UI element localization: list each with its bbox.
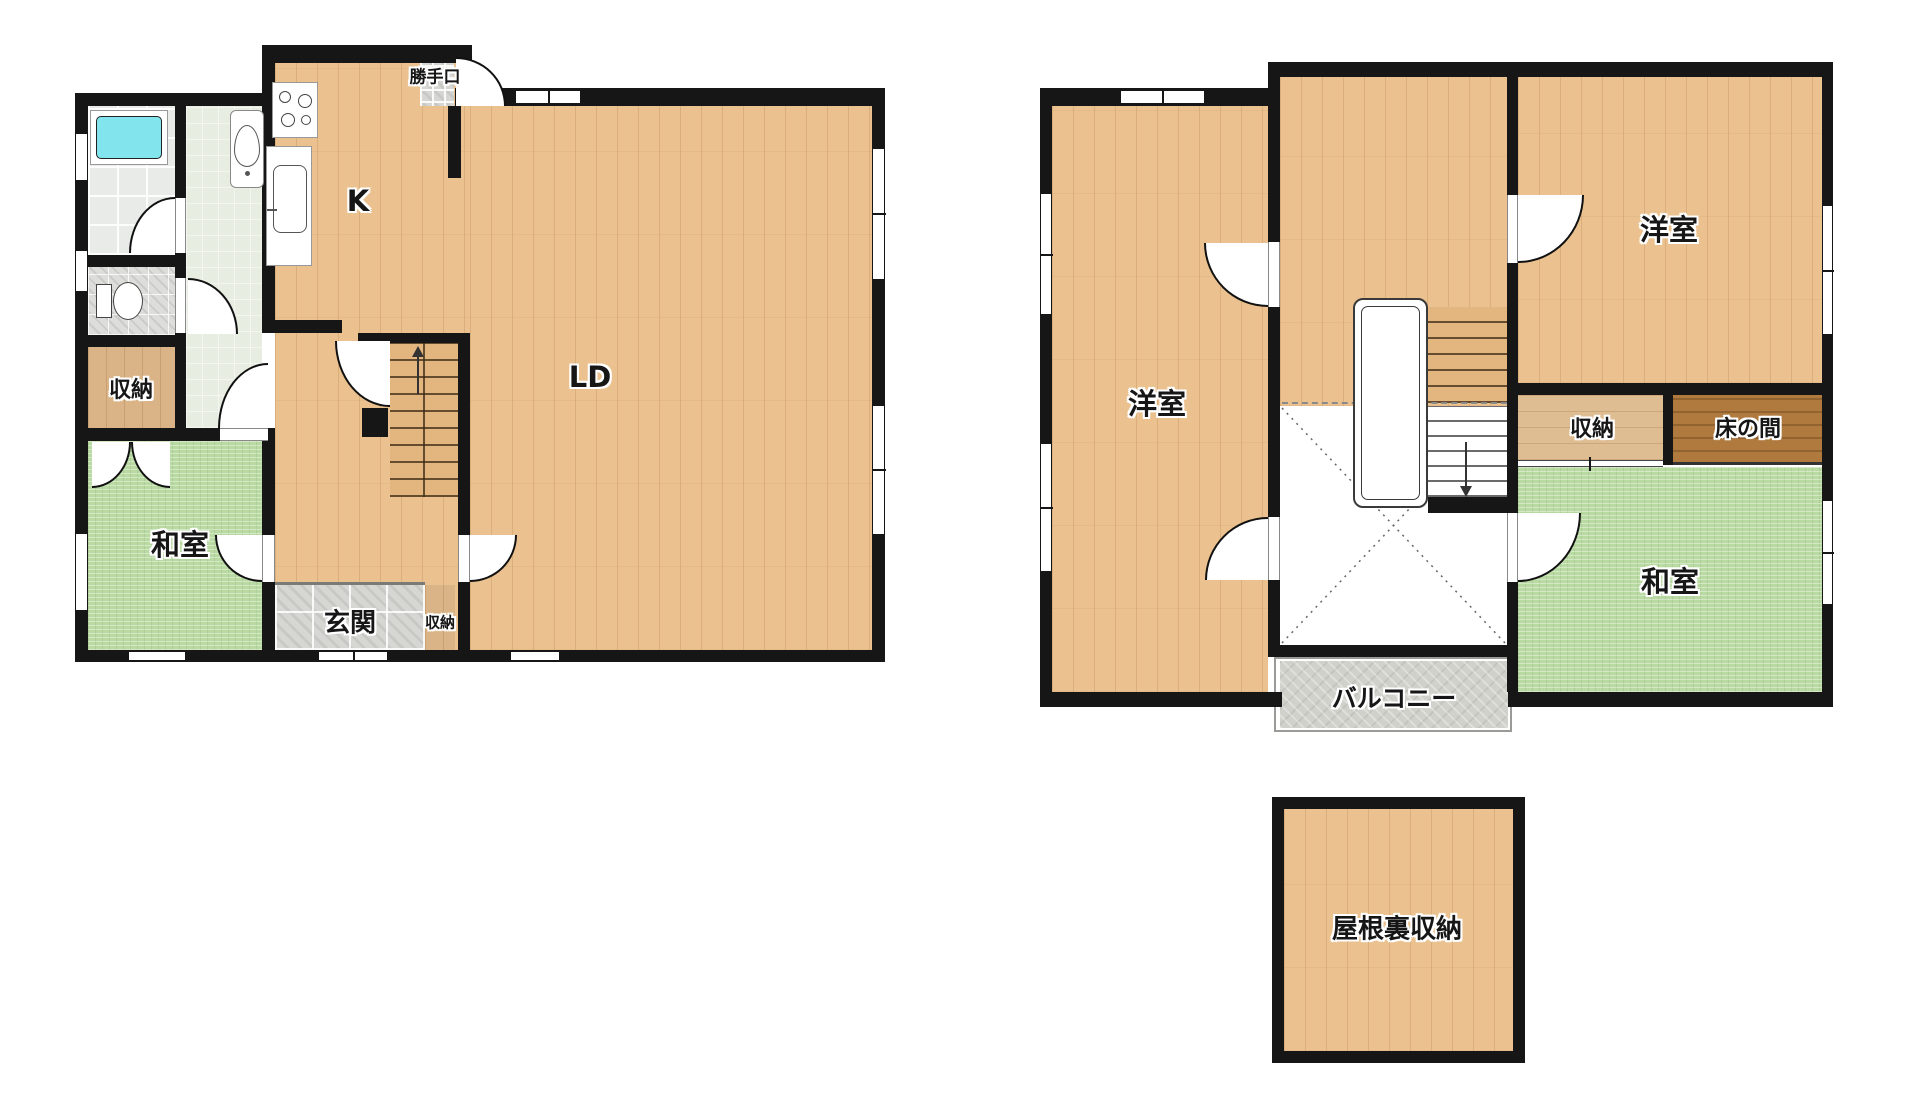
attic-group: 屋根裏収納 [0,0,1920,1105]
exterior-wall [1272,1051,1525,1063]
exterior-wall [1272,797,1525,809]
exterior-wall [1513,797,1525,1063]
attic-label: 屋根裏収納 [1332,909,1462,946]
floor-plan-canvas: 勝手口 K LD 収納 和室 玄関 収納 [0,0,1920,1105]
exterior-wall [1272,797,1284,1063]
